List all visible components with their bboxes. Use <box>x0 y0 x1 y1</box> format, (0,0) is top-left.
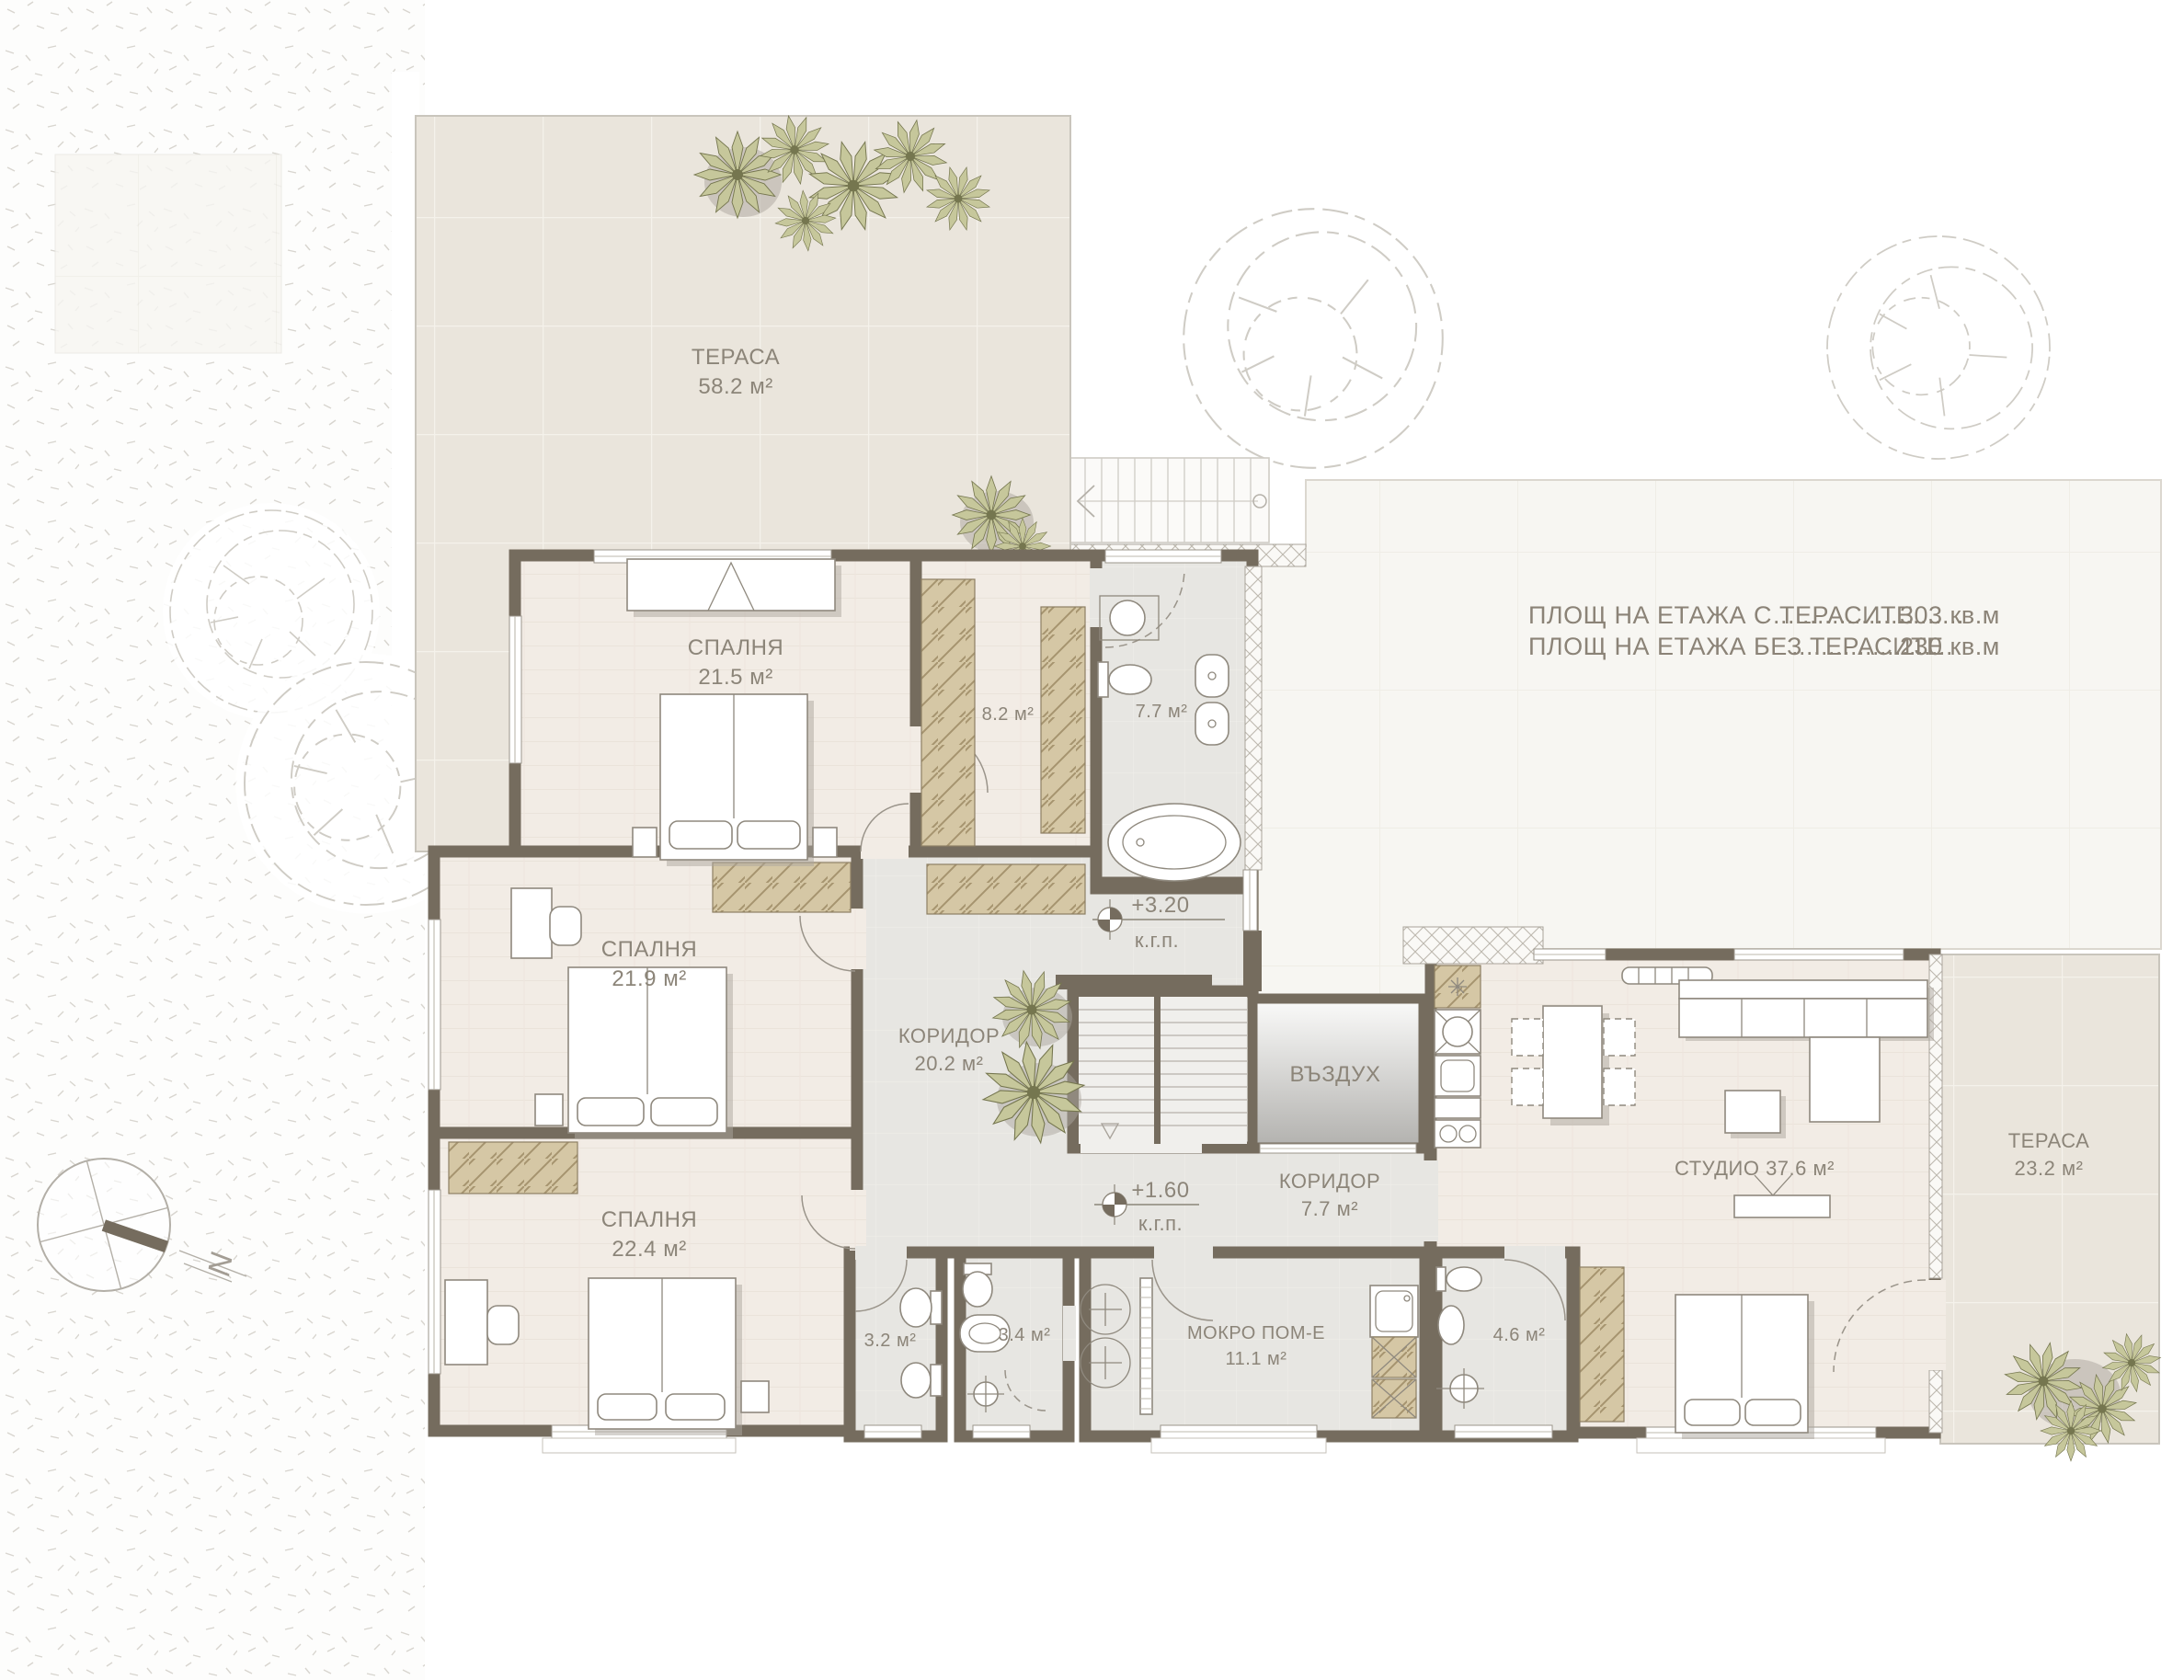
room-area: 8.2 м² <box>982 704 1035 725</box>
laundry-sink <box>1370 1286 1418 1337</box>
terrace-right: ТЕРАСА 23.2 м² <box>1940 954 2166 1472</box>
room-label: ТЕРАСА <box>692 345 780 370</box>
chair <box>487 1306 519 1344</box>
dresser <box>627 559 835 611</box>
room-area: 7.7 м² <box>1301 1197 1358 1220</box>
nightstand <box>813 828 837 857</box>
ladder <box>1140 1278 1152 1414</box>
sink <box>1438 1306 1464 1344</box>
level-value: +1.60 <box>1131 1178 1189 1203</box>
toilet <box>963 1272 992 1307</box>
chaise <box>1810 1037 1880 1122</box>
room-label: СТУДИО 37.6 м² <box>1675 1157 1835 1180</box>
toilet <box>900 1288 932 1327</box>
room-area: 7.7 м² <box>1136 702 1188 722</box>
room-label: СПАЛНЯ <box>688 635 784 660</box>
roof-area <box>1258 480 2161 999</box>
toilet <box>1109 665 1151 694</box>
level-datum: к.г.п. <box>1138 1212 1183 1235</box>
desk <box>511 888 552 958</box>
room-label: СПАЛНЯ <box>601 937 698 962</box>
studio-bed-area <box>1675 1295 1814 1439</box>
room-area: 4.6 м² <box>1493 1325 1546 1345</box>
room-area: 3.4 м² <box>999 1325 1051 1345</box>
level-datum: к.г.п. <box>1135 929 1179 952</box>
internal-staircase <box>1079 997 1247 1153</box>
tree-sketch <box>1770 179 2107 516</box>
chair <box>1512 1019 1543 1056</box>
nightstand <box>633 828 657 857</box>
room-label: ВЪЗДУХ <box>1290 1062 1381 1087</box>
counter <box>1435 1098 1481 1118</box>
room-area: 23.2 м² <box>2015 1157 2084 1180</box>
bidet <box>1195 703 1229 745</box>
summary-value-1: 303 кв.м <box>1900 601 2000 629</box>
room-label: СПАЛНЯ <box>601 1207 698 1232</box>
bed-double <box>1675 1295 1808 1433</box>
room-area: 22.4 м² <box>612 1237 686 1262</box>
nightstand <box>741 1381 769 1412</box>
floor-plan-page: { "rooms": { "terrace_top": {"name": "ТЕ… <box>0 0 2184 1680</box>
tv-bench <box>1734 1195 1830 1217</box>
level-value: +3.20 <box>1131 893 1189 918</box>
desk <box>445 1280 487 1365</box>
room-area: 11.1 м² <box>1226 1349 1287 1369</box>
bed-double <box>589 1278 736 1429</box>
summary-value-2: 230 кв.м <box>1900 633 2000 660</box>
room-area: 20.2 м² <box>915 1052 984 1075</box>
chair <box>1512 1069 1543 1105</box>
room-label: КОРИДОР <box>898 1024 1000 1047</box>
toilet <box>1195 655 1229 697</box>
dining-table <box>1543 1006 1602 1118</box>
kitchen-sink <box>1443 1017 1472 1046</box>
chair <box>1604 1019 1635 1056</box>
room-area: 58.2 м² <box>698 374 772 399</box>
bathtub <box>1108 804 1241 881</box>
studio-kitchen <box>1435 966 1481 1148</box>
sink <box>1110 600 1145 635</box>
bed-double <box>660 694 807 860</box>
room-area: 3.2 м² <box>864 1331 917 1351</box>
room-label: МОКРО ПОМ-Е <box>1187 1323 1325 1343</box>
room-area: 21.9 м² <box>612 966 686 991</box>
bidet <box>901 1363 931 1398</box>
stove <box>1435 1120 1481 1148</box>
toilet <box>1446 1267 1481 1291</box>
bed-double <box>568 967 726 1133</box>
room-label: ТЕРАСА <box>2008 1129 2090 1152</box>
nightstand <box>535 1094 563 1126</box>
chair <box>550 907 581 945</box>
chair <box>1604 1069 1635 1105</box>
room-label: КОРИДОР <box>1279 1170 1380 1193</box>
coffee-table <box>1725 1091 1780 1133</box>
floor-plan-drawing: ТЕРАСА 58.2 м² ТЕРАСА 23.2 м² <box>0 0 2184 1680</box>
room-area: 21.5 м² <box>698 665 772 690</box>
